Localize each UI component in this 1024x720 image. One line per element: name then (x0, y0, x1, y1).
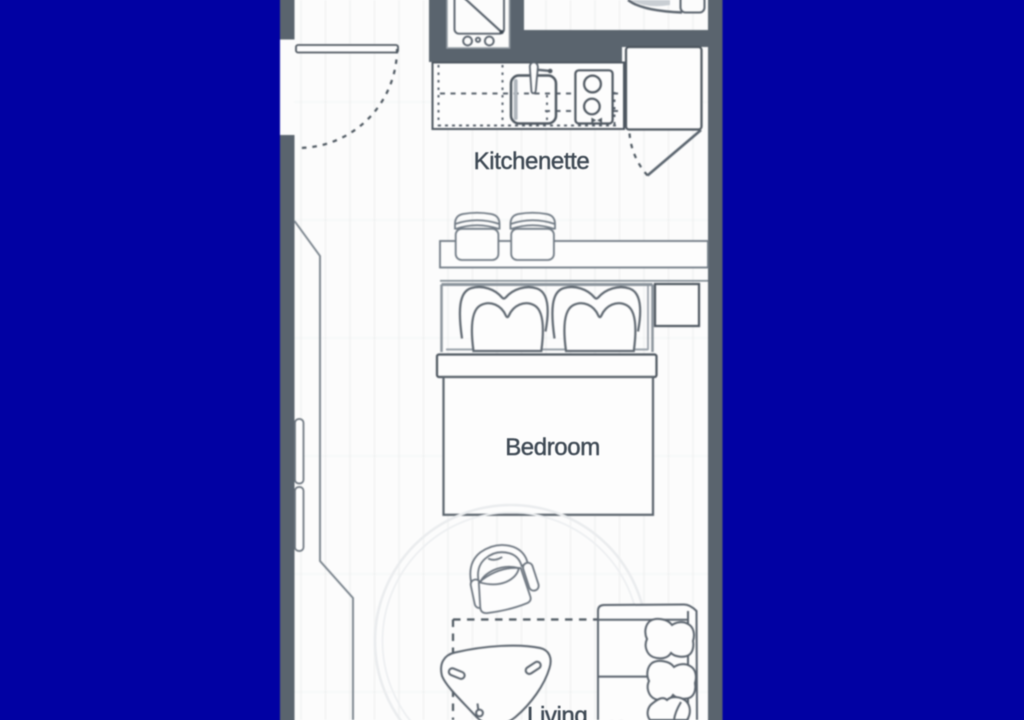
svg-text:Kitchenette: Kitchenette (474, 148, 590, 175)
svg-text:Living: Living (527, 703, 587, 720)
svg-text:Bedroom: Bedroom (505, 434, 600, 461)
